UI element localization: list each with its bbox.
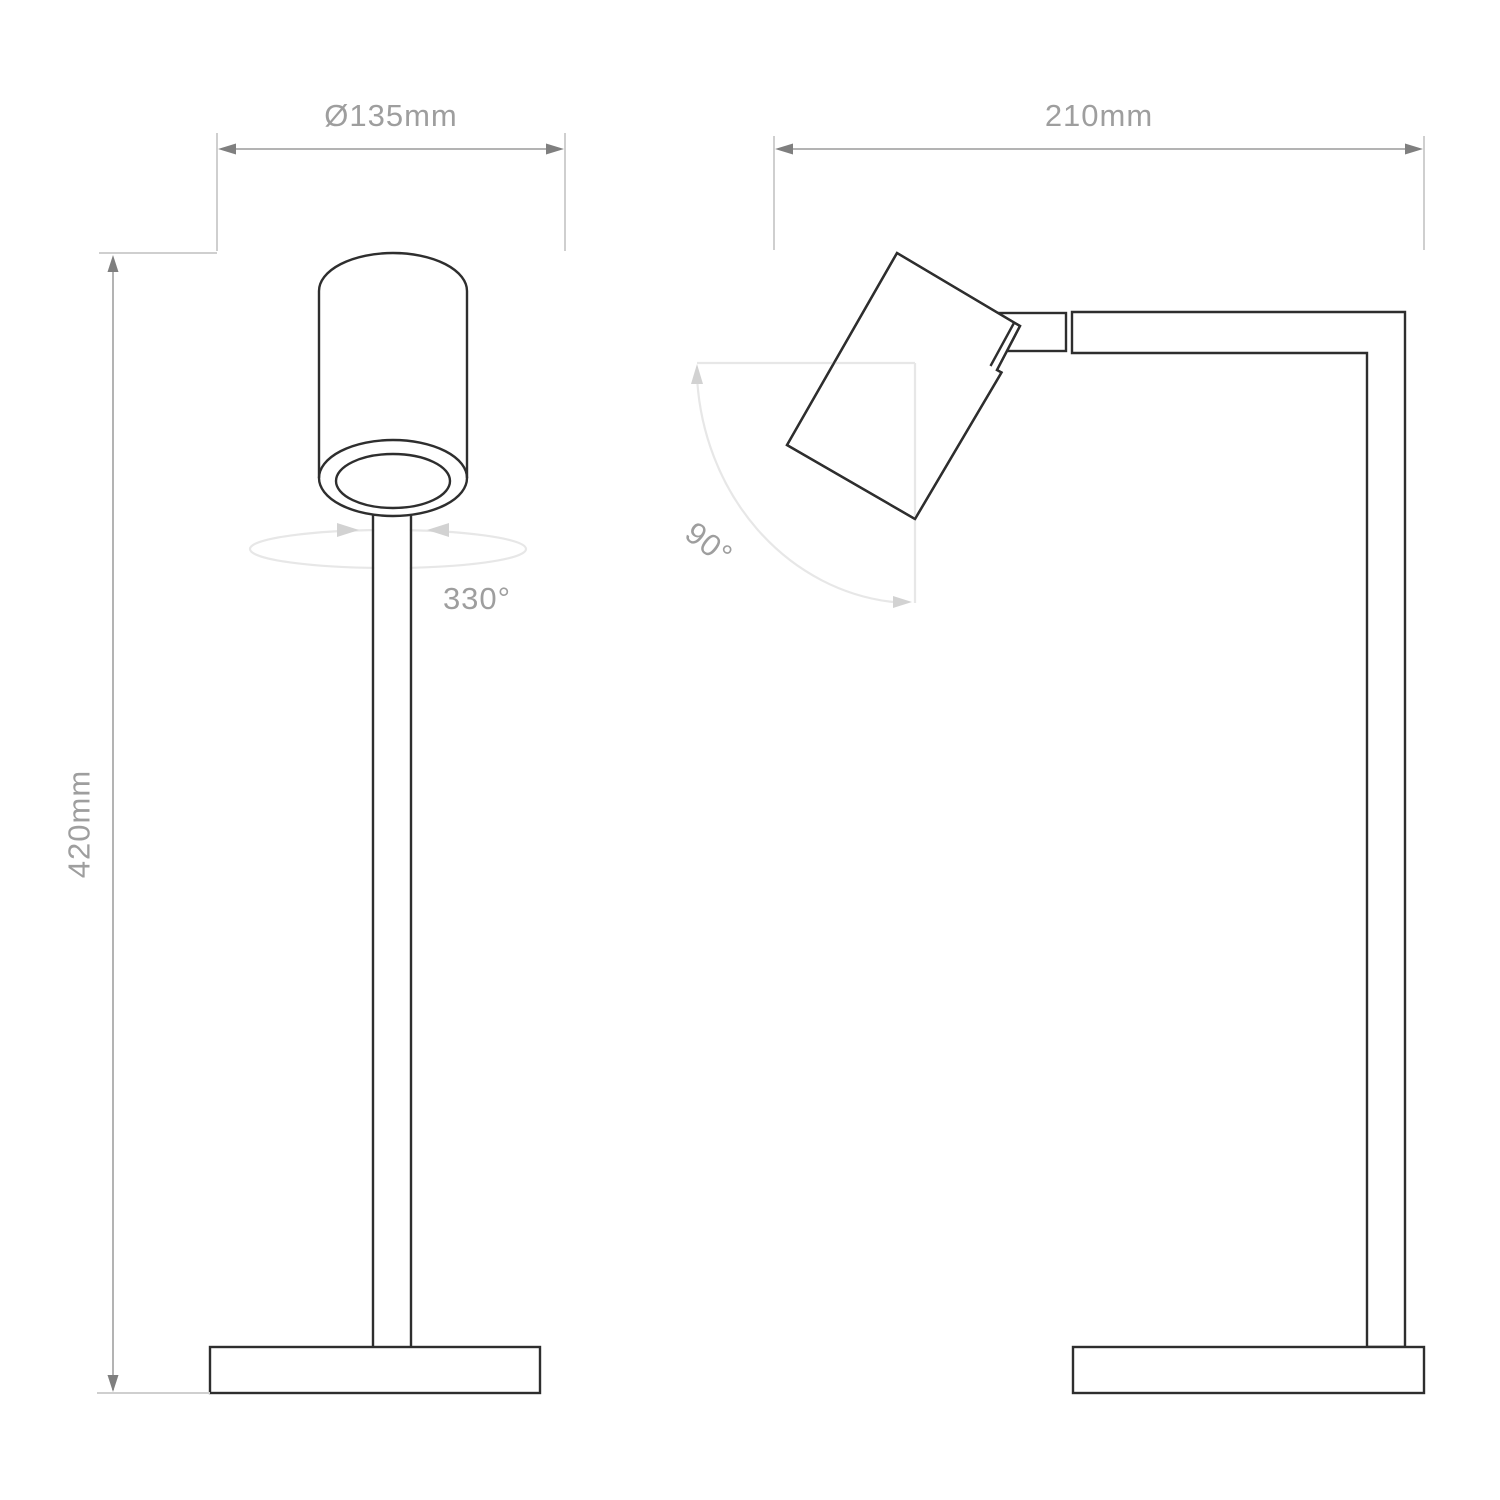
- arrow-up-icon: [108, 255, 119, 272]
- height-dimension-label: 420mm: [62, 770, 97, 878]
- arm-and-leg: [1072, 312, 1405, 1347]
- tilt-arrow-right-icon: [893, 596, 912, 608]
- lamp-stem-body: [374, 500, 410, 1347]
- arrow-right-icon: [1405, 144, 1423, 155]
- drawing-canvas: 330° Ø135mm 420mm: [0, 0, 1500, 1500]
- rotation-arrow-right-icon: [427, 523, 449, 537]
- lamp-head-rim-inner: [336, 454, 450, 508]
- width-dimension: 210mm: [774, 98, 1424, 250]
- diameter-dimension: Ø135mm: [217, 98, 565, 251]
- tilt-arrow-up-icon: [691, 364, 703, 384]
- lamp-head-top-arc: [319, 253, 467, 291]
- diameter-dimension-label: Ø135mm: [324, 98, 457, 133]
- rotation-arrow-left-icon: [337, 523, 359, 537]
- lamp-base: [210, 1347, 540, 1393]
- height-dimension: 420mm: [62, 253, 218, 1393]
- side-view: 90° 210mm: [679, 98, 1424, 1393]
- arrow-left-icon: [218, 144, 236, 155]
- width-dimension-label: 210mm: [1045, 98, 1153, 133]
- arrow-down-icon: [108, 1375, 119, 1392]
- arrow-left-icon: [775, 144, 793, 155]
- tilt-angle-label: 90°: [679, 515, 740, 573]
- lamp-base-side: [1073, 1347, 1424, 1393]
- front-view: 330° Ø135mm 420mm: [62, 98, 566, 1393]
- rotation-angle-label: 330°: [443, 581, 511, 616]
- arrow-right-icon: [546, 144, 564, 155]
- lamp-technical-drawing: 330° Ø135mm 420mm: [0, 0, 1500, 1500]
